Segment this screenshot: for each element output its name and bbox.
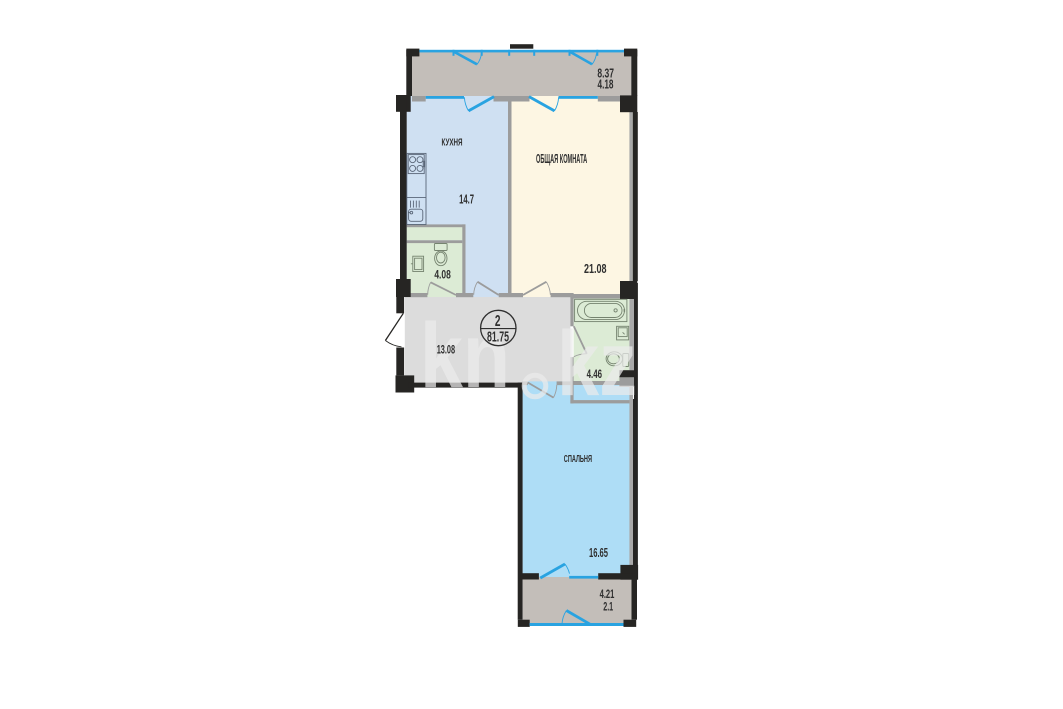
svg-text:21.08: 21.08 [584, 261, 607, 276]
svg-text:2.1: 2.1 [603, 602, 613, 614]
svg-text:4.21: 4.21 [600, 589, 615, 601]
svg-text:kz: kz [557, 313, 637, 415]
svg-text:16.65: 16.65 [589, 545, 608, 560]
svg-text:81.75: 81.75 [487, 328, 509, 345]
svg-text:14.7: 14.7 [459, 193, 474, 207]
svg-text:4.18: 4.18 [598, 77, 614, 92]
svg-text:КУХНЯ: КУХНЯ [442, 136, 463, 148]
svg-text:4.46: 4.46 [587, 369, 602, 381]
svg-text:СПАЛЬНЯ: СПАЛЬНЯ [564, 453, 592, 465]
svg-text:13.08: 13.08 [437, 345, 456, 357]
svg-text:ОБЩАЯ КОМНАТА: ОБЩАЯ КОМНАТА [536, 152, 587, 166]
svg-text:4.08: 4.08 [434, 269, 451, 281]
